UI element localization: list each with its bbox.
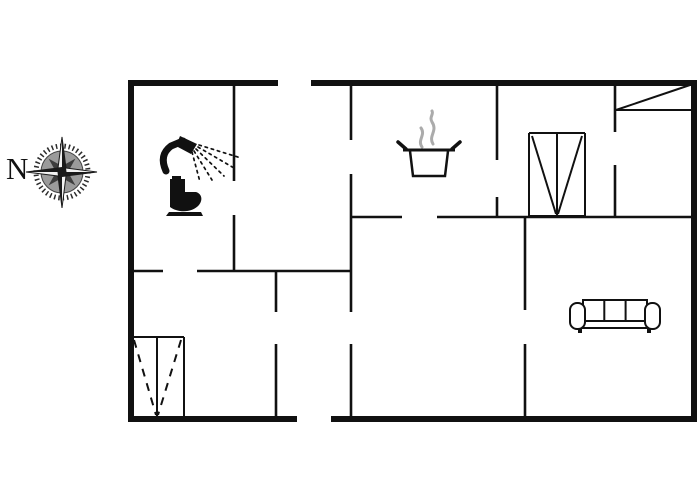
walls-layer — [128, 80, 697, 422]
floor-plan-svg — [0, 0, 700, 500]
sloped-ceiling-line — [616, 84, 693, 110]
steam-wisp — [431, 111, 434, 144]
stove-pot-icon — [398, 111, 460, 176]
compass-rose-icon — [26, 137, 97, 208]
wardrobe-icon — [529, 133, 585, 216]
wardrobe-layer — [131, 133, 585, 417]
wardrobe-door-diagonal — [532, 136, 556, 214]
toilet-icon — [166, 176, 203, 216]
shower-icon — [163, 136, 241, 182]
wardrobe-door-diagonal — [558, 136, 582, 214]
steam-wisp — [420, 128, 422, 147]
floor-plan-page: N — [0, 0, 700, 500]
sofa-icon — [570, 300, 660, 333]
wardrobe-icon — [131, 337, 184, 417]
wardrobe-door-diagonal — [134, 340, 156, 415]
wardrobe-door-diagonal — [158, 340, 181, 415]
